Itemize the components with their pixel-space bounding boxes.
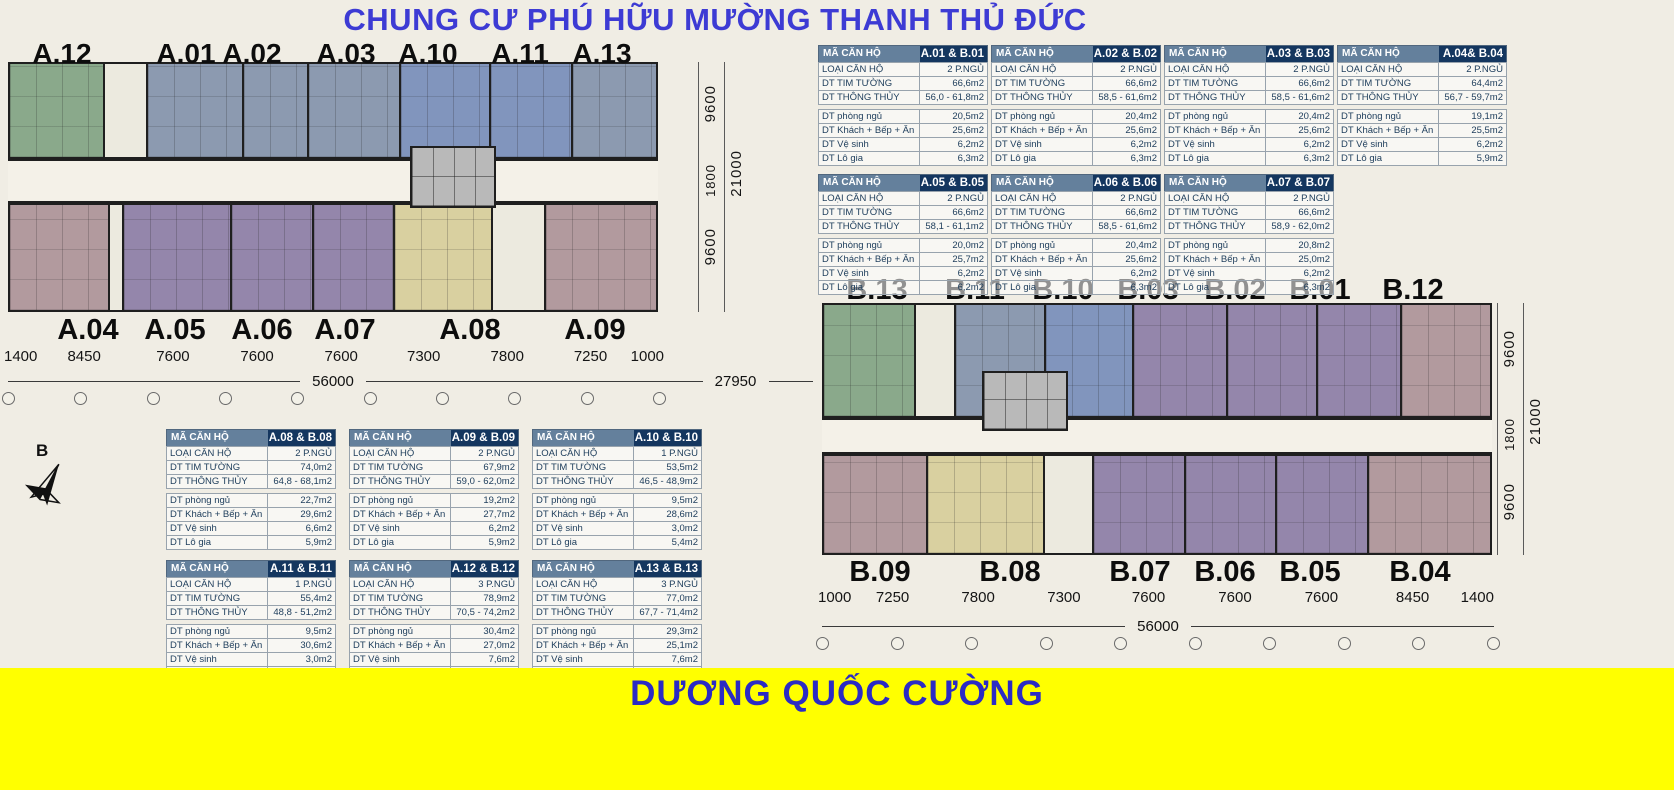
unit-label: B.05: [1279, 556, 1340, 589]
row-value: 20,4m2: [1266, 110, 1333, 123]
row-value: 66,6m2: [1266, 77, 1333, 90]
block-b-top-band: [822, 303, 1492, 418]
row-value: 74,0m2: [268, 461, 335, 474]
row-label: DT Lô gia: [992, 281, 1093, 294]
table-header-label: MÃ CĂN HỘ: [533, 430, 634, 446]
row-label: DT Khách + Bếp + Ăn: [992, 253, 1093, 266]
row-value: 6,3m2: [1093, 281, 1160, 294]
row-label: DT TIM TƯỜNG: [350, 461, 451, 474]
apartment-area: [1092, 456, 1184, 553]
row-value: 5,4m2: [634, 536, 701, 549]
row-label: DT Vệ sinh: [533, 522, 634, 535]
row-label: DT Vệ sinh: [1165, 267, 1266, 280]
row-value: 19,2m2: [451, 494, 518, 507]
table-header-label: MÃ CĂN HỘ: [167, 561, 268, 577]
table-header-label: MÃ CĂN HỘ: [819, 175, 920, 191]
row-value: 6,2m2: [920, 281, 987, 294]
unit-label: A.05: [144, 314, 205, 347]
apartment-area: [242, 64, 307, 157]
row-label: DT THÔNG THỦY: [992, 220, 1093, 233]
axis-bubbles: [2, 392, 666, 405]
row-value: 66,6m2: [920, 206, 987, 219]
dim-segment: 7300: [383, 348, 464, 365]
compass-icon: B: [12, 438, 72, 543]
row-value: 25,5m2: [1439, 124, 1506, 137]
row-value: 6,3m2: [920, 152, 987, 165]
row-value: 7,6m2: [451, 653, 518, 666]
row-label: DT THÔNG THỦY: [167, 475, 268, 488]
row-label: DT phòng ngủ: [350, 625, 451, 638]
unit-table-a11-b11: MÃ CĂN HỘA.11 & B.11 LOẠI CĂN HỘ1 P.NGỦ …: [166, 561, 336, 681]
row-value: 67,9m2: [451, 461, 518, 474]
row-value: 2 P.NGỦ: [1093, 63, 1160, 76]
side-dim: 9600: [1501, 330, 1518, 367]
row-value: 6,3m2: [1266, 281, 1333, 294]
row-value: 64,8 - 68,1m2: [268, 475, 335, 488]
row-value: 25,0m2: [1266, 253, 1333, 266]
unit-table-a01-b01: MÃ CĂN HỘA.01 & B.01 LOẠI CĂN HỘ2 P.NGỦ …: [818, 46, 988, 166]
row-label: DT Lô gia: [819, 281, 920, 294]
dim-segment: 1400: [1461, 589, 1494, 606]
row-label: DT Khách + Bếp + Ăn: [533, 639, 634, 652]
row-value: 20,8m2: [1266, 239, 1333, 252]
row-label: DT Vệ sinh: [167, 522, 268, 535]
block-a-dimension-row: 1400 8450 7600 7600 7600 7300 7800 7250 …: [4, 348, 664, 365]
row-value: 25,6m2: [1093, 253, 1160, 266]
plan-block-a: [8, 62, 658, 312]
apartment-area: [1400, 305, 1490, 416]
row-label: DT Vệ sinh: [1165, 138, 1266, 151]
unit-label: A.10: [398, 38, 457, 70]
row-label: LOẠI CĂN HỘ: [533, 447, 634, 460]
stair-void: [108, 205, 122, 310]
row-value: 2 P.NGỦ: [1266, 192, 1333, 205]
row-label: DT THÔNG THỦY: [992, 91, 1093, 104]
row-value: 2 P.NGỦ: [451, 447, 518, 460]
dim-segment: 1000: [631, 348, 664, 365]
row-label: DT phòng ngủ: [533, 625, 634, 638]
unit-table-a06-b06: MÃ CĂN HỘA.06 & B.06 LOẠI CĂN HỘ2 P.NGỦ …: [991, 175, 1161, 295]
unit-code: A.02 & B.02: [1093, 46, 1160, 62]
row-label: DT Vệ sinh: [819, 138, 920, 151]
apartment-area: [571, 64, 656, 157]
row-value: 58,1 - 61,1m2: [920, 220, 987, 233]
unit-code: A.04& B.04: [1439, 46, 1506, 62]
row-label: DT phòng ngủ: [167, 494, 268, 507]
unit-label: A.02: [222, 38, 281, 70]
unit-table-a12-b12: MÃ CĂN HỘA.12 & B.12 LOẠI CĂN HỘ3 P.NGỦ …: [349, 561, 519, 681]
row-value: 58,5 - 61,6m2: [1093, 220, 1160, 233]
unit-label: A.13: [572, 38, 631, 70]
unit-table-a05-b05: MÃ CĂN HỘA.05 & B.05 LOẠI CĂN HỘ2 P.NGỦ …: [818, 175, 988, 295]
row-label: DT Khách + Bếp + Ăn: [992, 124, 1093, 137]
apartment-area: [1316, 305, 1401, 416]
row-value: 6,2m2: [451, 522, 518, 535]
apartment-area: [393, 205, 491, 310]
apartment-area: [122, 205, 230, 310]
row-value: 19,1m2: [1439, 110, 1506, 123]
apartment-area: [230, 205, 312, 310]
row-label: DT Vệ sinh: [1338, 138, 1439, 151]
row-label: DT TIM TƯỜNG: [1338, 77, 1439, 90]
unit-code: A.01 & B.01: [920, 46, 987, 62]
side-dim: 1800: [703, 164, 718, 197]
row-label: DT Khách + Bếp + Ăn: [350, 508, 451, 521]
row-label: LOẠI CĂN HỘ: [1165, 192, 1266, 205]
footer-banner: DƯƠNG QUỐC CƯỜNG: [0, 668, 1674, 790]
unit-code: A.13 & B.13: [634, 561, 701, 577]
row-label: LOẠI CĂN HỘ: [350, 578, 451, 591]
table-header-label: MÃ CĂN HỘ: [1338, 46, 1439, 62]
unit-label: A.03: [316, 38, 375, 70]
row-value: 2 P.NGỦ: [268, 447, 335, 460]
row-value: 20,0m2: [920, 239, 987, 252]
row-value: 30,6m2: [268, 639, 335, 652]
unit-table-a09-b09: MÃ CĂN HỘA.09 & B.09 LOẠI CĂN HỘ2 P.NGỦ …: [349, 430, 519, 550]
unit-label: A.04: [57, 314, 118, 347]
row-label: DT Vệ sinh: [350, 522, 451, 535]
row-value: 6,3m2: [1266, 152, 1333, 165]
row-label: DT TIM TƯỜNG: [819, 77, 920, 90]
row-value: 6,2m2: [1266, 267, 1333, 280]
table-header-label: MÃ CĂN HỘ: [167, 430, 268, 446]
row-label: DT THÔNG THỦY: [1165, 220, 1266, 233]
apartment-area: [544, 205, 656, 310]
side-dim-total: 21000: [728, 150, 745, 197]
block-a-top-band: [8, 62, 658, 159]
unit-label: B.08: [979, 556, 1040, 589]
table-header-label: MÃ CĂN HỘ: [819, 46, 920, 62]
row-label: DT Vệ sinh: [992, 267, 1093, 280]
page-title: CHUNG CƯ PHÚ HỮU MƯỜNG THANH THỦ ĐỨC: [0, 2, 1430, 38]
table-header-label: MÃ CĂN HỘ: [992, 175, 1093, 191]
dim-segment: 7600: [1192, 589, 1278, 606]
dim-segment: 1000: [818, 589, 851, 606]
unit-code: A.08 & B.08: [268, 430, 335, 446]
side-dim: 9600: [1501, 483, 1518, 520]
unit-label: A.01: [156, 38, 215, 70]
table-header-label: MÃ CĂN HỘ: [350, 430, 451, 446]
row-label: DT TIM TƯỜNG: [167, 461, 268, 474]
row-value: 3 P.NGỦ: [451, 578, 518, 591]
unit-label: B.07: [1109, 556, 1170, 589]
table-header-label: MÃ CĂN HỘ: [1165, 46, 1266, 62]
dim-segment: 7600: [299, 348, 383, 365]
row-value: 64,4m2: [1439, 77, 1506, 90]
row-label: DT Khách + Bếp + Ăn: [1165, 253, 1266, 266]
row-label: DT phòng ngủ: [819, 239, 920, 252]
row-label: DT TIM TƯỜNG: [533, 592, 634, 605]
row-value: 6,2m2: [1439, 138, 1506, 151]
row-label: DT Vệ sinh: [992, 138, 1093, 151]
row-value: 53,5m2: [634, 461, 701, 474]
row-value: 6,2m2: [1266, 138, 1333, 151]
row-value: 20,5m2: [920, 110, 987, 123]
row-label: DT phòng ngủ: [992, 239, 1093, 252]
side-dim: 9600: [702, 228, 719, 265]
row-value: 5,9m2: [268, 536, 335, 549]
row-label: DT THÔNG THỦY: [350, 475, 451, 488]
row-label: DT Lô gia: [167, 536, 268, 549]
side-dim-total: 21000: [1527, 398, 1544, 445]
unit-table-a13-b13: MÃ CĂN HỘA.13 & B.13 LOẠI CĂN HỘ3 P.NGỦ …: [532, 561, 702, 681]
row-value: 66,6m2: [1093, 206, 1160, 219]
apartment-area: [926, 456, 1042, 553]
row-label: LOẠI CĂN HỘ: [1165, 63, 1266, 76]
apartment-area: [824, 456, 926, 553]
table-header-label: MÃ CĂN HỘ: [1165, 175, 1266, 191]
apartment-area: [10, 64, 103, 157]
row-value: 6,2m2: [1093, 138, 1160, 151]
unit-label: B.09: [849, 556, 910, 589]
row-value: 25,7m2: [920, 253, 987, 266]
lobby-void: [1043, 456, 1092, 553]
apartment-area: [489, 64, 571, 157]
row-label: DT Lô gia: [350, 536, 451, 549]
row-label: DT Vệ sinh: [350, 653, 451, 666]
row-value: 25,6m2: [920, 124, 987, 137]
row-value: 20,4m2: [1093, 239, 1160, 252]
unit-code: A.12 & B.12: [451, 561, 518, 577]
row-label: DT phòng ngủ: [350, 494, 451, 507]
dim-segment: 7600: [1105, 589, 1191, 606]
row-label: DT THÔNG THỦY: [533, 475, 634, 488]
row-value: 6,3m2: [1093, 152, 1160, 165]
row-value: 1 P.NGỦ: [634, 447, 701, 460]
dim-segment: 7600: [131, 348, 215, 365]
row-value: 2 P.NGỦ: [920, 192, 987, 205]
row-value: 3,0m2: [634, 522, 701, 535]
unit-table-a02-b02: MÃ CĂN HỘA.02 & B.02 LOẠI CĂN HỘ2 P.NGỦ …: [991, 46, 1161, 166]
lobby-void: [491, 205, 544, 310]
row-value: 20,4m2: [1093, 110, 1160, 123]
row-label: DT THÔNG THỦY: [167, 606, 268, 619]
row-label: DT Khách + Bếp + Ăn: [819, 253, 920, 266]
unit-label: A.07: [314, 314, 375, 347]
axis-bubbles: [816, 637, 1500, 650]
dim-segment: 7600: [1278, 589, 1364, 606]
stair-void: [103, 64, 146, 157]
row-label: DT phòng ngủ: [992, 110, 1093, 123]
block-a-bottom-band: [8, 203, 658, 312]
elevator-core: [982, 371, 1068, 431]
row-label: DT Khách + Bếp + Ăn: [350, 639, 451, 652]
apartment-area: [1226, 305, 1316, 416]
row-value: 58,5 - 61,6m2: [1093, 91, 1160, 104]
apartment-area: [1132, 305, 1226, 416]
row-value: 30,4m2: [451, 625, 518, 638]
row-value: 59,0 - 62,0m2: [451, 475, 518, 488]
row-label: DT TIM TƯỜNG: [819, 206, 920, 219]
row-label: DT TIM TƯỜNG: [167, 592, 268, 605]
row-label: DT TIM TƯỜNG: [992, 77, 1093, 90]
row-value: 25,6m2: [1266, 124, 1333, 137]
blocks-gap-dim: 27950: [658, 381, 813, 390]
row-value: 5,9m2: [1439, 152, 1506, 165]
row-value: 9,5m2: [634, 494, 701, 507]
dim-segment: 7800: [464, 348, 550, 365]
row-label: DT Khách + Bếp + Ăn: [167, 639, 268, 652]
row-label: DT THÔNG THỦY: [1338, 91, 1439, 104]
row-label: LOẠI CĂN HỘ: [1338, 63, 1439, 76]
row-label: DT THÔNG THỦY: [1165, 91, 1266, 104]
unit-label: A.06: [231, 314, 292, 347]
unit-code: A.10 & B.10: [634, 430, 701, 446]
row-label: DT Khách + Bếp + Ăn: [1338, 124, 1439, 137]
row-label: DT phòng ngủ: [1338, 110, 1439, 123]
table-header-label: MÃ CĂN HỘ: [350, 561, 451, 577]
row-value: 28,6m2: [634, 508, 701, 521]
row-value: 58,9 - 62,0m2: [1266, 220, 1333, 233]
row-label: LOẠI CĂN HỘ: [167, 447, 268, 460]
row-label: DT phòng ngủ: [167, 625, 268, 638]
unit-code: A.05 & B.05: [920, 175, 987, 191]
row-label: DT THÔNG THỦY: [350, 606, 451, 619]
row-value: 48,8 - 51,2m2: [268, 606, 335, 619]
unit-label: A.08: [439, 314, 500, 347]
row-value: 70,5 - 74,2m2: [451, 606, 518, 619]
row-label: DT phòng ngủ: [533, 494, 634, 507]
apartment-area: [1367, 456, 1490, 553]
row-label: DT Lô gia: [1338, 152, 1439, 165]
row-label: DT Khách + Bếp + Ăn: [533, 508, 634, 521]
row-value: 2 P.NGỦ: [1093, 192, 1160, 205]
row-value: 29,6m2: [268, 508, 335, 521]
row-label: DT Lô gia: [819, 152, 920, 165]
row-value: 66,6m2: [1266, 206, 1333, 219]
unit-code: A.06 & B.06: [1093, 175, 1160, 191]
dim-segment: 8450: [1365, 589, 1461, 606]
apartment-area: [824, 305, 914, 416]
stair-void: [914, 305, 955, 416]
row-label: DT Khách + Bếp + Ăn: [167, 508, 268, 521]
side-dim: 1800: [1502, 418, 1517, 451]
unit-table-a07-b07: MÃ CĂN HỘA.07 & B.07 LOẠI CĂN HỘ2 P.NGỦ …: [1164, 175, 1334, 295]
row-label: LOẠI CĂN HỘ: [819, 192, 920, 205]
row-value: 27,7m2: [451, 508, 518, 521]
block-a-total-dim: 56000: [8, 381, 658, 390]
apartment-area: [1184, 456, 1276, 553]
table-header-label: MÃ CĂN HỘ: [533, 561, 634, 577]
row-value: 46,5 - 48,9m2: [634, 475, 701, 488]
row-value: 58,5 - 61,6m2: [1266, 91, 1333, 104]
row-label: DT Lô gia: [992, 152, 1093, 165]
row-value: 3,0m2: [268, 653, 335, 666]
row-label: DT Vệ sinh: [819, 267, 920, 280]
block-b-bottom-band: [822, 454, 1492, 555]
dim-segment: 7250: [851, 589, 933, 606]
row-label: DT Lô gia: [533, 536, 634, 549]
unit-label: B.04: [1389, 556, 1450, 589]
row-value: 66,6m2: [920, 77, 987, 90]
row-value: 6,2m2: [1093, 267, 1160, 280]
footer-text: DƯƠNG QUỐC CƯỜNG: [0, 674, 1674, 714]
dim-segment: 8450: [37, 348, 131, 365]
plan-block-b: [822, 303, 1492, 555]
row-value: 2 P.NGỦ: [1439, 63, 1506, 76]
row-value: 9,5m2: [268, 625, 335, 638]
dim-segment: 1400: [4, 348, 37, 365]
apartment-area: [307, 64, 399, 157]
row-label: DT Khách + Bếp + Ăn: [1165, 124, 1266, 137]
row-label: DT phòng ngủ: [1165, 239, 1266, 252]
block-a-corridor: [8, 159, 658, 203]
row-value: 67,7 - 71,4m2: [634, 606, 701, 619]
row-value: 56,7 - 59,7m2: [1439, 91, 1506, 104]
unit-table-a08-b08: MÃ CĂN HỘA.08 & B.08 LOẠI CĂN HỘ2 P.NGỦ …: [166, 430, 336, 550]
row-label: LOẠI CĂN HỘ: [992, 192, 1093, 205]
dim-segment: 7250: [550, 348, 630, 365]
row-label: DT phòng ngủ: [819, 110, 920, 123]
unit-label: A.12: [32, 38, 91, 70]
row-value: 56,0 - 61,8m2: [920, 91, 987, 104]
elevator-core: [410, 146, 496, 208]
row-label: DT Vệ sinh: [533, 653, 634, 666]
row-label: DT Khách + Bếp + Ăn: [819, 124, 920, 137]
dim-segment: 7600: [215, 348, 299, 365]
row-value: 6,2m2: [920, 267, 987, 280]
row-label: DT phòng ngủ: [1165, 110, 1266, 123]
row-value: 2 P.NGỦ: [920, 63, 987, 76]
apartment-area: [1275, 456, 1367, 553]
row-label: DT TIM TƯỜNG: [1165, 77, 1266, 90]
row-value: 7,6m2: [634, 653, 701, 666]
row-label: DT TIM TƯỜNG: [350, 592, 451, 605]
row-label: LOẠI CĂN HỘ: [533, 578, 634, 591]
unit-tables-top: MÃ CĂN HỘA.01 & B.01 LOẠI CĂN HỘ2 P.NGỦ …: [818, 46, 1509, 295]
row-value: 55,4m2: [268, 592, 335, 605]
apartment-area: [312, 205, 393, 310]
row-value: 66,6m2: [1093, 77, 1160, 90]
dim-segment: 7300: [1022, 589, 1105, 606]
table-header-label: MÃ CĂN HỘ: [992, 46, 1093, 62]
row-label: DT Lô gia: [1165, 152, 1266, 165]
unit-label: A.11: [491, 38, 549, 70]
row-label: DT TIM TƯỜNG: [533, 461, 634, 474]
row-value: 5,9m2: [451, 536, 518, 549]
unit-tables-bottom: MÃ CĂN HỘA.08 & B.08 LOẠI CĂN HỘ2 P.NGỦ …: [166, 430, 702, 681]
row-value: 29,3m2: [634, 625, 701, 638]
row-value: 27,0m2: [451, 639, 518, 652]
row-label: LOẠI CĂN HỘ: [350, 447, 451, 460]
block-b-corridor: [822, 418, 1492, 454]
unit-table-a04-b04: MÃ CĂN HỘA.04& B.04 LOẠI CĂN HỘ2 P.NGỦ D…: [1337, 46, 1507, 166]
row-label: LOẠI CĂN HỘ: [819, 63, 920, 76]
unit-code: A.03 & B.03: [1266, 46, 1333, 62]
row-value: 3 P.NGỦ: [634, 578, 701, 591]
row-value: 25,1m2: [634, 639, 701, 652]
row-label: DT Lô gia: [1165, 281, 1266, 294]
row-value: 77,0m2: [634, 592, 701, 605]
row-value: 6,2m2: [920, 138, 987, 151]
unit-code: A.11 & B.11: [268, 561, 335, 577]
unit-table-a10-b10: MÃ CĂN HỘA.10 & B.10 LOẠI CĂN HỘ1 P.NGỦ …: [532, 430, 702, 550]
unit-table-a03-b03: MÃ CĂN HỘA.03 & B.03 LOẠI CĂN HỘ2 P.NGỦ …: [1164, 46, 1334, 166]
apartment-area: [399, 64, 489, 157]
compass-north-label: B: [36, 441, 48, 460]
block-b-total-dim: 56000: [822, 626, 1494, 635]
row-value: 2 P.NGỦ: [1266, 63, 1333, 76]
unit-label: A.09: [564, 314, 625, 347]
unit-code: A.07 & B.07: [1266, 175, 1333, 191]
row-label: DT THÔNG THỦY: [819, 220, 920, 233]
unit-label: B.06: [1194, 556, 1255, 589]
row-label: DT TIM TƯỜNG: [992, 206, 1093, 219]
row-value: 25,6m2: [1093, 124, 1160, 137]
row-label: DT Vệ sinh: [167, 653, 268, 666]
block-b-dimension-row: 1000 7250 7800 7300 7600 7600 7600 8450 …: [818, 589, 1494, 606]
row-label: LOẠI CĂN HỘ: [167, 578, 268, 591]
